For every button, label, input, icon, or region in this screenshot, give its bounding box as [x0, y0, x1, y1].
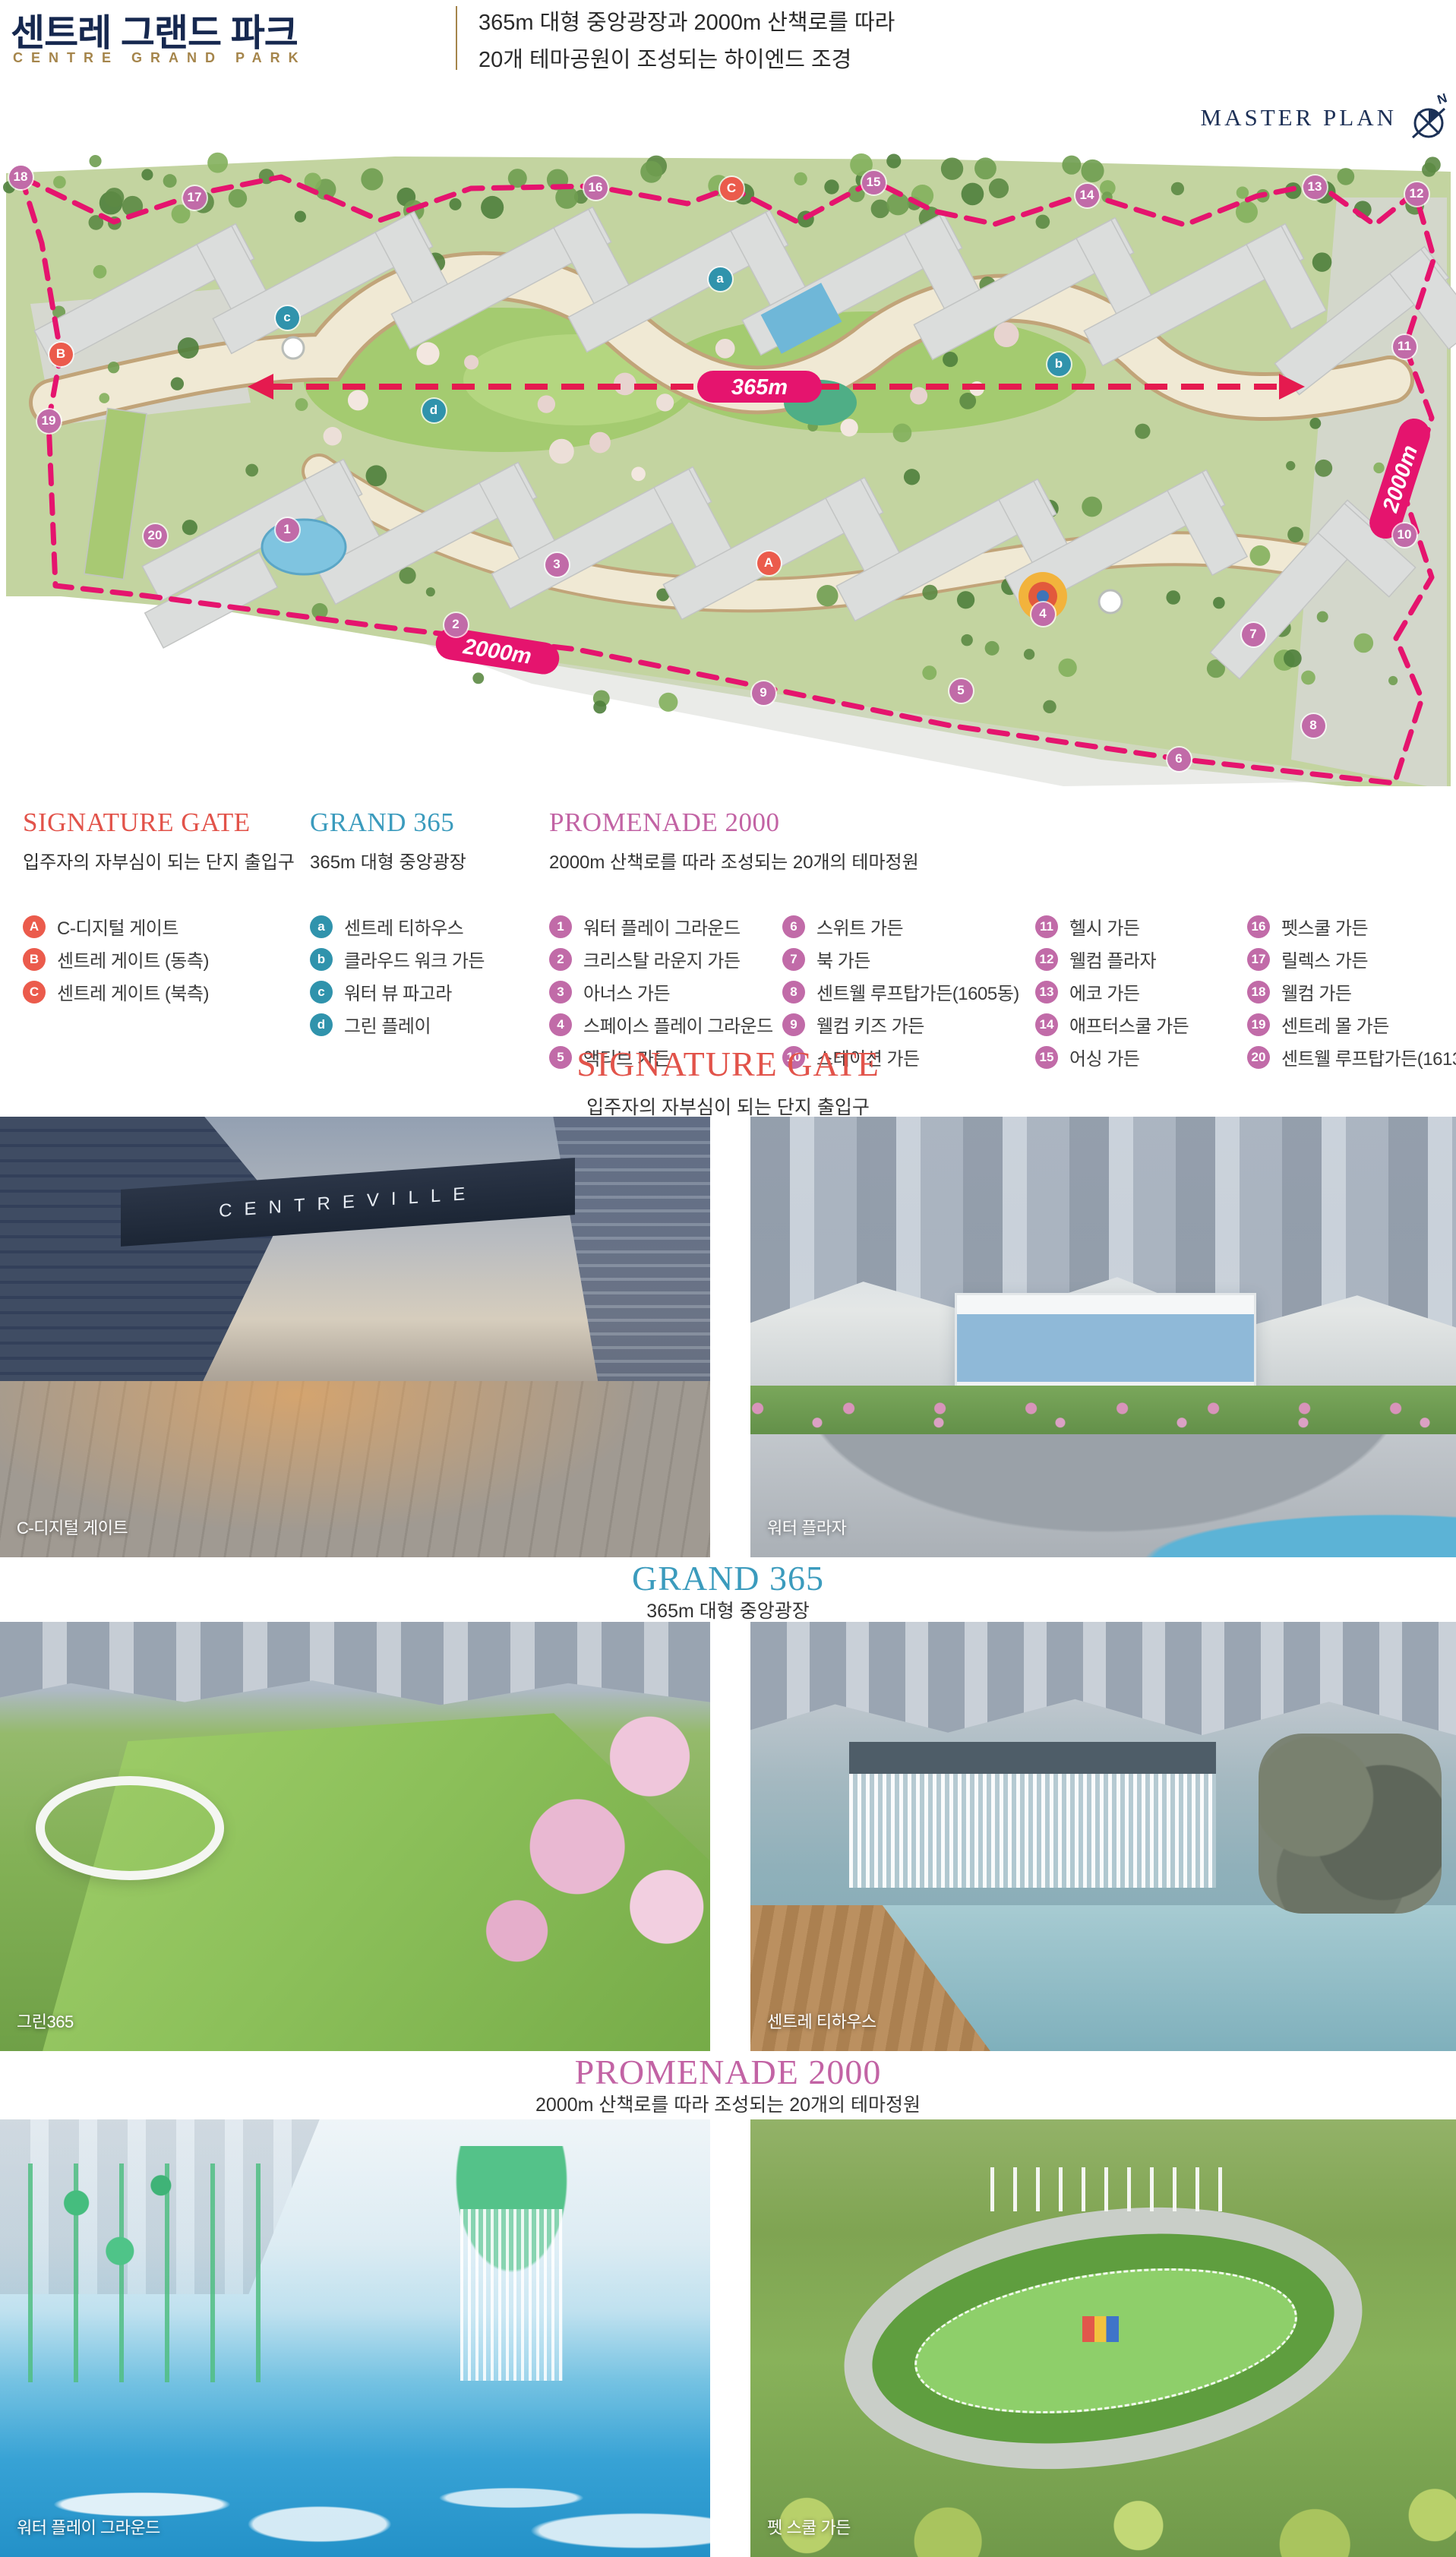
legend-subtitle: 입주자의 자부심이 되는 단지 출입구 [23, 847, 304, 874]
legend-item-badge: 3 [549, 981, 572, 1004]
photo-caption: 워터 플라자 [767, 1515, 846, 1539]
map-marker-c: c [276, 306, 299, 330]
legend-item-label: 센트레 게이트 (동측) [57, 946, 209, 972]
map-marker-10: 10 [1393, 523, 1417, 547]
legend-item-label: 펫스쿨 가든 [1281, 913, 1368, 940]
photo-pet-school-garden: 펫 스쿨 가든 [750, 2119, 1456, 2557]
legend-item: 7북 가든 [782, 943, 1019, 975]
map-marker-8: 8 [1302, 714, 1325, 738]
legend-item-badge: 18 [1247, 981, 1270, 1004]
section-title-promenade-2000: PROMENADE 2000 [0, 2052, 1456, 2092]
map-marker-3: 3 [545, 553, 569, 577]
legend-item-badge: 4 [549, 1013, 572, 1036]
description-line-2: 20개 테마공원이 조성되는 하이엔드 조경 [478, 42, 895, 79]
photo-art [750, 1622, 1456, 1751]
legend-item-badge: a [310, 915, 333, 938]
legend-item-badge: 7 [782, 948, 805, 971]
photo-caption: 펫 스쿨 가든 [767, 2514, 851, 2539]
legend-item-badge: A [23, 915, 46, 938]
legend-item-label: 워터 뷰 파고라 [344, 978, 452, 1005]
map-marker-5: 5 [949, 679, 973, 703]
photo-green-365: 그린365 [0, 1622, 710, 2051]
photo-art [1259, 1734, 1442, 1914]
legend-item-label: 센트레 몰 가든 [1281, 1011, 1389, 1038]
legend-item: 16펫스쿨 가든 [1247, 910, 1456, 943]
legend-subtitle: 2000m 산책로를 따라 조성되는 20개의 테마정원 [549, 847, 1453, 874]
legend-item: 18웰컴 가든 [1247, 975, 1456, 1008]
photo-art [469, 1690, 710, 1991]
legend-item: c워터 뷰 파고라 [310, 975, 485, 1008]
description-line-1: 365m 대형 중앙광장과 2000m 산책로를 따라 [478, 5, 895, 42]
legend-item-label: 센트레 게이트 (북측) [57, 978, 209, 1005]
compass-icon: N [1409, 93, 1451, 143]
legend-item-badge: B [23, 948, 46, 971]
legend-title: SIGNATURE GATE [23, 808, 304, 838]
legend-item-badge: c [310, 981, 333, 1004]
section-subtitle: 2000m 산책로를 따라 조성되는 20개의 테마정원 [0, 2090, 1456, 2117]
compass-north-label: N [1435, 93, 1449, 107]
legend-item-badge: 2 [549, 948, 572, 971]
legend-title: PROMENADE 2000 [549, 808, 1453, 838]
map-marker-20: 20 [144, 524, 167, 548]
legend-item: 3아너스 가든 [549, 975, 773, 1008]
header-divider [456, 6, 457, 70]
map-marker-18: 18 [9, 166, 33, 189]
photo-row-grand-365: 그린365 센트레 티하우스 [0, 1622, 1456, 2051]
legend-item-badge: d [310, 1013, 333, 1036]
legend-item-badge: 17 [1247, 948, 1270, 971]
legend-item-badge: 14 [1035, 1013, 1058, 1036]
legend-item-label: 워터 플레이 그라운드 [583, 913, 741, 940]
section-title-signature-gate: SIGNATURE GATE [0, 1044, 1456, 1084]
legend-item: AC-디지털 게이트 [23, 910, 209, 943]
photo-caption: C-디지털 게이트 [17, 1515, 128, 1539]
map-marker-B: B [49, 343, 73, 366]
legend-item: 12웰컴 플라자 [1035, 943, 1189, 975]
legend-item-label: C-디지털 게이트 [57, 913, 178, 940]
legend-item: C센트레 게이트 (북측) [23, 975, 209, 1008]
legend-item-label: 스페이스 플레이 그라운드 [583, 1011, 773, 1038]
legend-item-label: 북 가든 [816, 946, 870, 972]
legend-group-signature-gate: SIGNATURE GATE 입주자의 자부심이 되는 단지 출입구 AC-디지… [23, 808, 304, 874]
photo-art [384, 2146, 640, 2391]
master-plan-heading: MASTER PLAN N [1201, 93, 1451, 143]
map-marker-17: 17 [183, 186, 207, 210]
legend-item-label: 애프터스쿨 가든 [1069, 1011, 1189, 1038]
legend-item-label: 릴렉스 가든 [1281, 946, 1368, 972]
legend-item: d그린 플레이 [310, 1008, 485, 1041]
legend-item: 6스위트 가든 [782, 910, 1019, 943]
photo-art [990, 2167, 1230, 2211]
section-subtitle: 입주자의 자부심이 되는 단지 출입구 [0, 1092, 1456, 1120]
photo-art [849, 1742, 1216, 1888]
legend-item-badge: 9 [782, 1013, 805, 1036]
map-marker-16: 16 [584, 176, 608, 200]
legend-item: b클라우드 워크 가든 [310, 943, 485, 975]
legend-item-label: 센트웰 루프탑가든(1605동) [816, 978, 1019, 1005]
page-title: 센트레 그랜드 파크 [11, 3, 298, 57]
legend-title: GRAND 365 [310, 808, 545, 838]
legend-item: 2크리스탈 라운지 가든 [549, 943, 773, 975]
map-marker-C: C [720, 177, 744, 201]
photo-water-plaza: 워터 플라자 [750, 1117, 1456, 1557]
legend-item-badge: 11 [1035, 915, 1058, 938]
photo-caption: 센트레 티하우스 [767, 2009, 876, 2033]
legend-item-label: 크리스탈 라운지 가든 [583, 946, 741, 972]
map-marker-14: 14 [1075, 184, 1099, 207]
legend-item: 1워터 플레이 그라운드 [549, 910, 773, 943]
photo-art [750, 2452, 1456, 2557]
photo-water-play-ground: 워터 플레이 그라운드 [0, 2119, 710, 2557]
photo-c-digital-gate: CENTREVILLE C-디지털 게이트 [0, 1117, 710, 1557]
map-marker-7: 7 [1242, 623, 1265, 646]
brochure-page: 센트레 그랜드 파크 CENTRE GRAND PARK 365m 대형 중앙광… [0, 0, 1456, 2557]
photo-caption: 워터 플레이 그라운드 [17, 2514, 160, 2539]
legend-item: 19센트레 몰 가든 [1247, 1008, 1456, 1041]
legend-group-grand-365: GRAND 365 365m 대형 중앙광장 a센트레 티하우스b클라우드 워크… [310, 808, 545, 874]
map-marker-1: 1 [276, 518, 299, 542]
photo-centre-tea-house: 센트레 티하우스 [750, 1622, 1456, 2051]
map-marker-13: 13 [1303, 175, 1327, 199]
legend-item: 13에코 가든 [1035, 975, 1189, 1008]
legend-item-badge: 12 [1035, 948, 1058, 971]
legend-item-badge: C [23, 981, 46, 1004]
photo-row-promenade-2000: 워터 플레이 그라운드 펫 스쿨 가든 [0, 2119, 1456, 2557]
map-marker-4: 4 [1031, 602, 1055, 626]
map-marker-9: 9 [752, 681, 775, 705]
legend-item: 11헬시 가든 [1035, 910, 1189, 943]
legend-item: B센트레 게이트 (동측) [23, 943, 209, 975]
legend-item-label: 웰컴 플라자 [1069, 946, 1156, 972]
legend-item-badge: 8 [782, 981, 805, 1004]
map-marker-15: 15 [862, 171, 886, 194]
photo-caption: 그린365 [17, 2009, 74, 2033]
legend-item: 8센트웰 루프탑가든(1605동) [782, 975, 1019, 1008]
legend-item-label: 스위트 가든 [816, 913, 903, 940]
legend-item-badge: 16 [1247, 915, 1270, 938]
legend-group-promenade-2000: PROMENADE 2000 2000m 산책로를 따라 조성되는 20개의 테… [549, 808, 1453, 874]
map-marker-b: b [1047, 352, 1071, 376]
map-marker-a: a [709, 267, 732, 291]
photo-art [750, 1434, 1456, 1557]
map-marker-6: 6 [1167, 748, 1191, 771]
legend-item-label: 아너스 가든 [583, 978, 670, 1005]
legend-item-label: 클라우드 워크 가든 [344, 946, 485, 972]
map-marker-d: d [422, 399, 446, 422]
legend-item-label: 센트레 티하우스 [344, 913, 463, 940]
photo-art [526, 1117, 710, 1390]
legend-item-badge: 1 [549, 915, 572, 938]
photo-row-signature-gate: CENTREVILLE C-디지털 게이트 워터 플라자 [0, 1117, 1456, 1557]
legend-items: AC-디지털 게이트B센트레 게이트 (동측)C센트레 게이트 (북측) [23, 910, 209, 1008]
legend-items: a센트레 티하우스b클라우드 워크 가든c워터 뷰 파고라d그린 플레이 [310, 910, 485, 1041]
legend-item-badge: 6 [782, 915, 805, 938]
legend-item: 9웰컴 키즈 가든 [782, 1008, 1019, 1041]
legend-item-label: 에코 가든 [1069, 978, 1140, 1005]
legend-item-badge: 13 [1035, 981, 1058, 1004]
photo-art [1082, 2316, 1119, 2342]
legend-item: a센트레 티하우스 [310, 910, 485, 943]
legend-item-label: 그린 플레이 [344, 1011, 431, 1038]
legend-item-badge: 19 [1247, 1013, 1270, 1036]
map-marker-A: A [757, 552, 781, 575]
map-marker-layer: ABCabcd1234567891011121314151617181920 [0, 152, 1456, 786]
legend-item: 4스페이스 플레이 그라운드 [549, 1008, 773, 1041]
photo-art [36, 1776, 224, 1880]
legend-subtitle: 365m 대형 중앙광장 [310, 847, 545, 874]
page-title-english: CENTRE GRAND PARK [13, 50, 307, 66]
section-title-grand-365: GRAND 365 [0, 1558, 1456, 1598]
legend-item-label: 웰컴 키즈 가든 [816, 1011, 924, 1038]
legend-item-badge: b [310, 948, 333, 971]
master-plan-map: 365m 2000m 2000m ABCabcd1234567891011121… [0, 152, 1456, 786]
legend-item: 14애프터스쿨 가든 [1035, 1008, 1189, 1041]
map-marker-19: 19 [37, 409, 61, 433]
legend-item: 17릴렉스 가든 [1247, 943, 1456, 975]
section-subtitle: 365m 대형 중앙광장 [0, 1596, 1456, 1623]
photo-art [28, 2163, 270, 2382]
legend-item-label: 헬시 가든 [1069, 913, 1140, 940]
legend-item-label: 웰컴 가든 [1281, 978, 1352, 1005]
map-marker-12: 12 [1405, 182, 1429, 206]
master-plan-label: MASTER PLAN [1201, 104, 1397, 131]
map-marker-11: 11 [1393, 335, 1417, 359]
header-description: 365m 대형 중앙광장과 2000m 산책로를 따라 20개 테마공원이 조성… [478, 5, 895, 79]
map-marker-2: 2 [444, 613, 468, 637]
